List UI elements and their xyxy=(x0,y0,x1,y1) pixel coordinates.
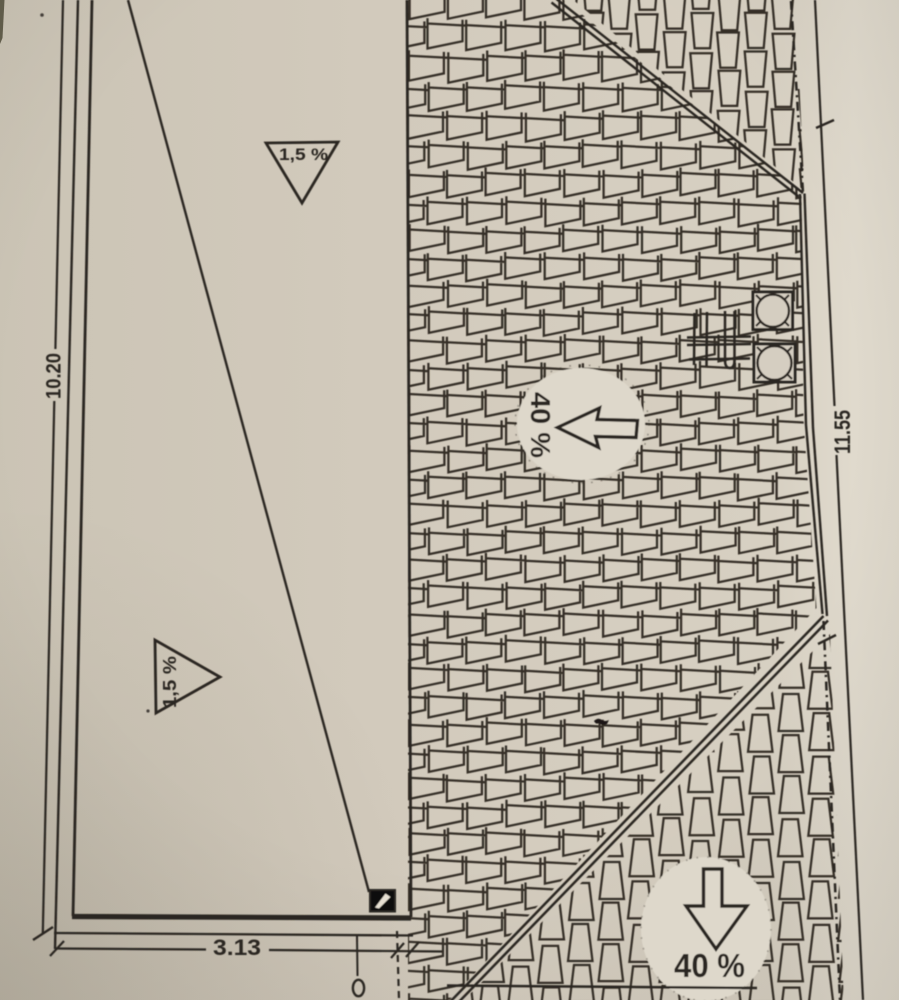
svg-text:40 %: 40 % xyxy=(674,947,745,984)
svg-text:3.13: 3.13 xyxy=(213,935,261,960)
svg-text:1,5 %: 1,5 % xyxy=(279,145,328,164)
svg-text:10.20: 10.20 xyxy=(43,353,66,399)
svg-text:1,5 %: 1,5 % xyxy=(160,656,180,708)
svg-text:40 %: 40 % xyxy=(525,392,556,458)
svg-text:11.55: 11.55 xyxy=(830,410,855,454)
